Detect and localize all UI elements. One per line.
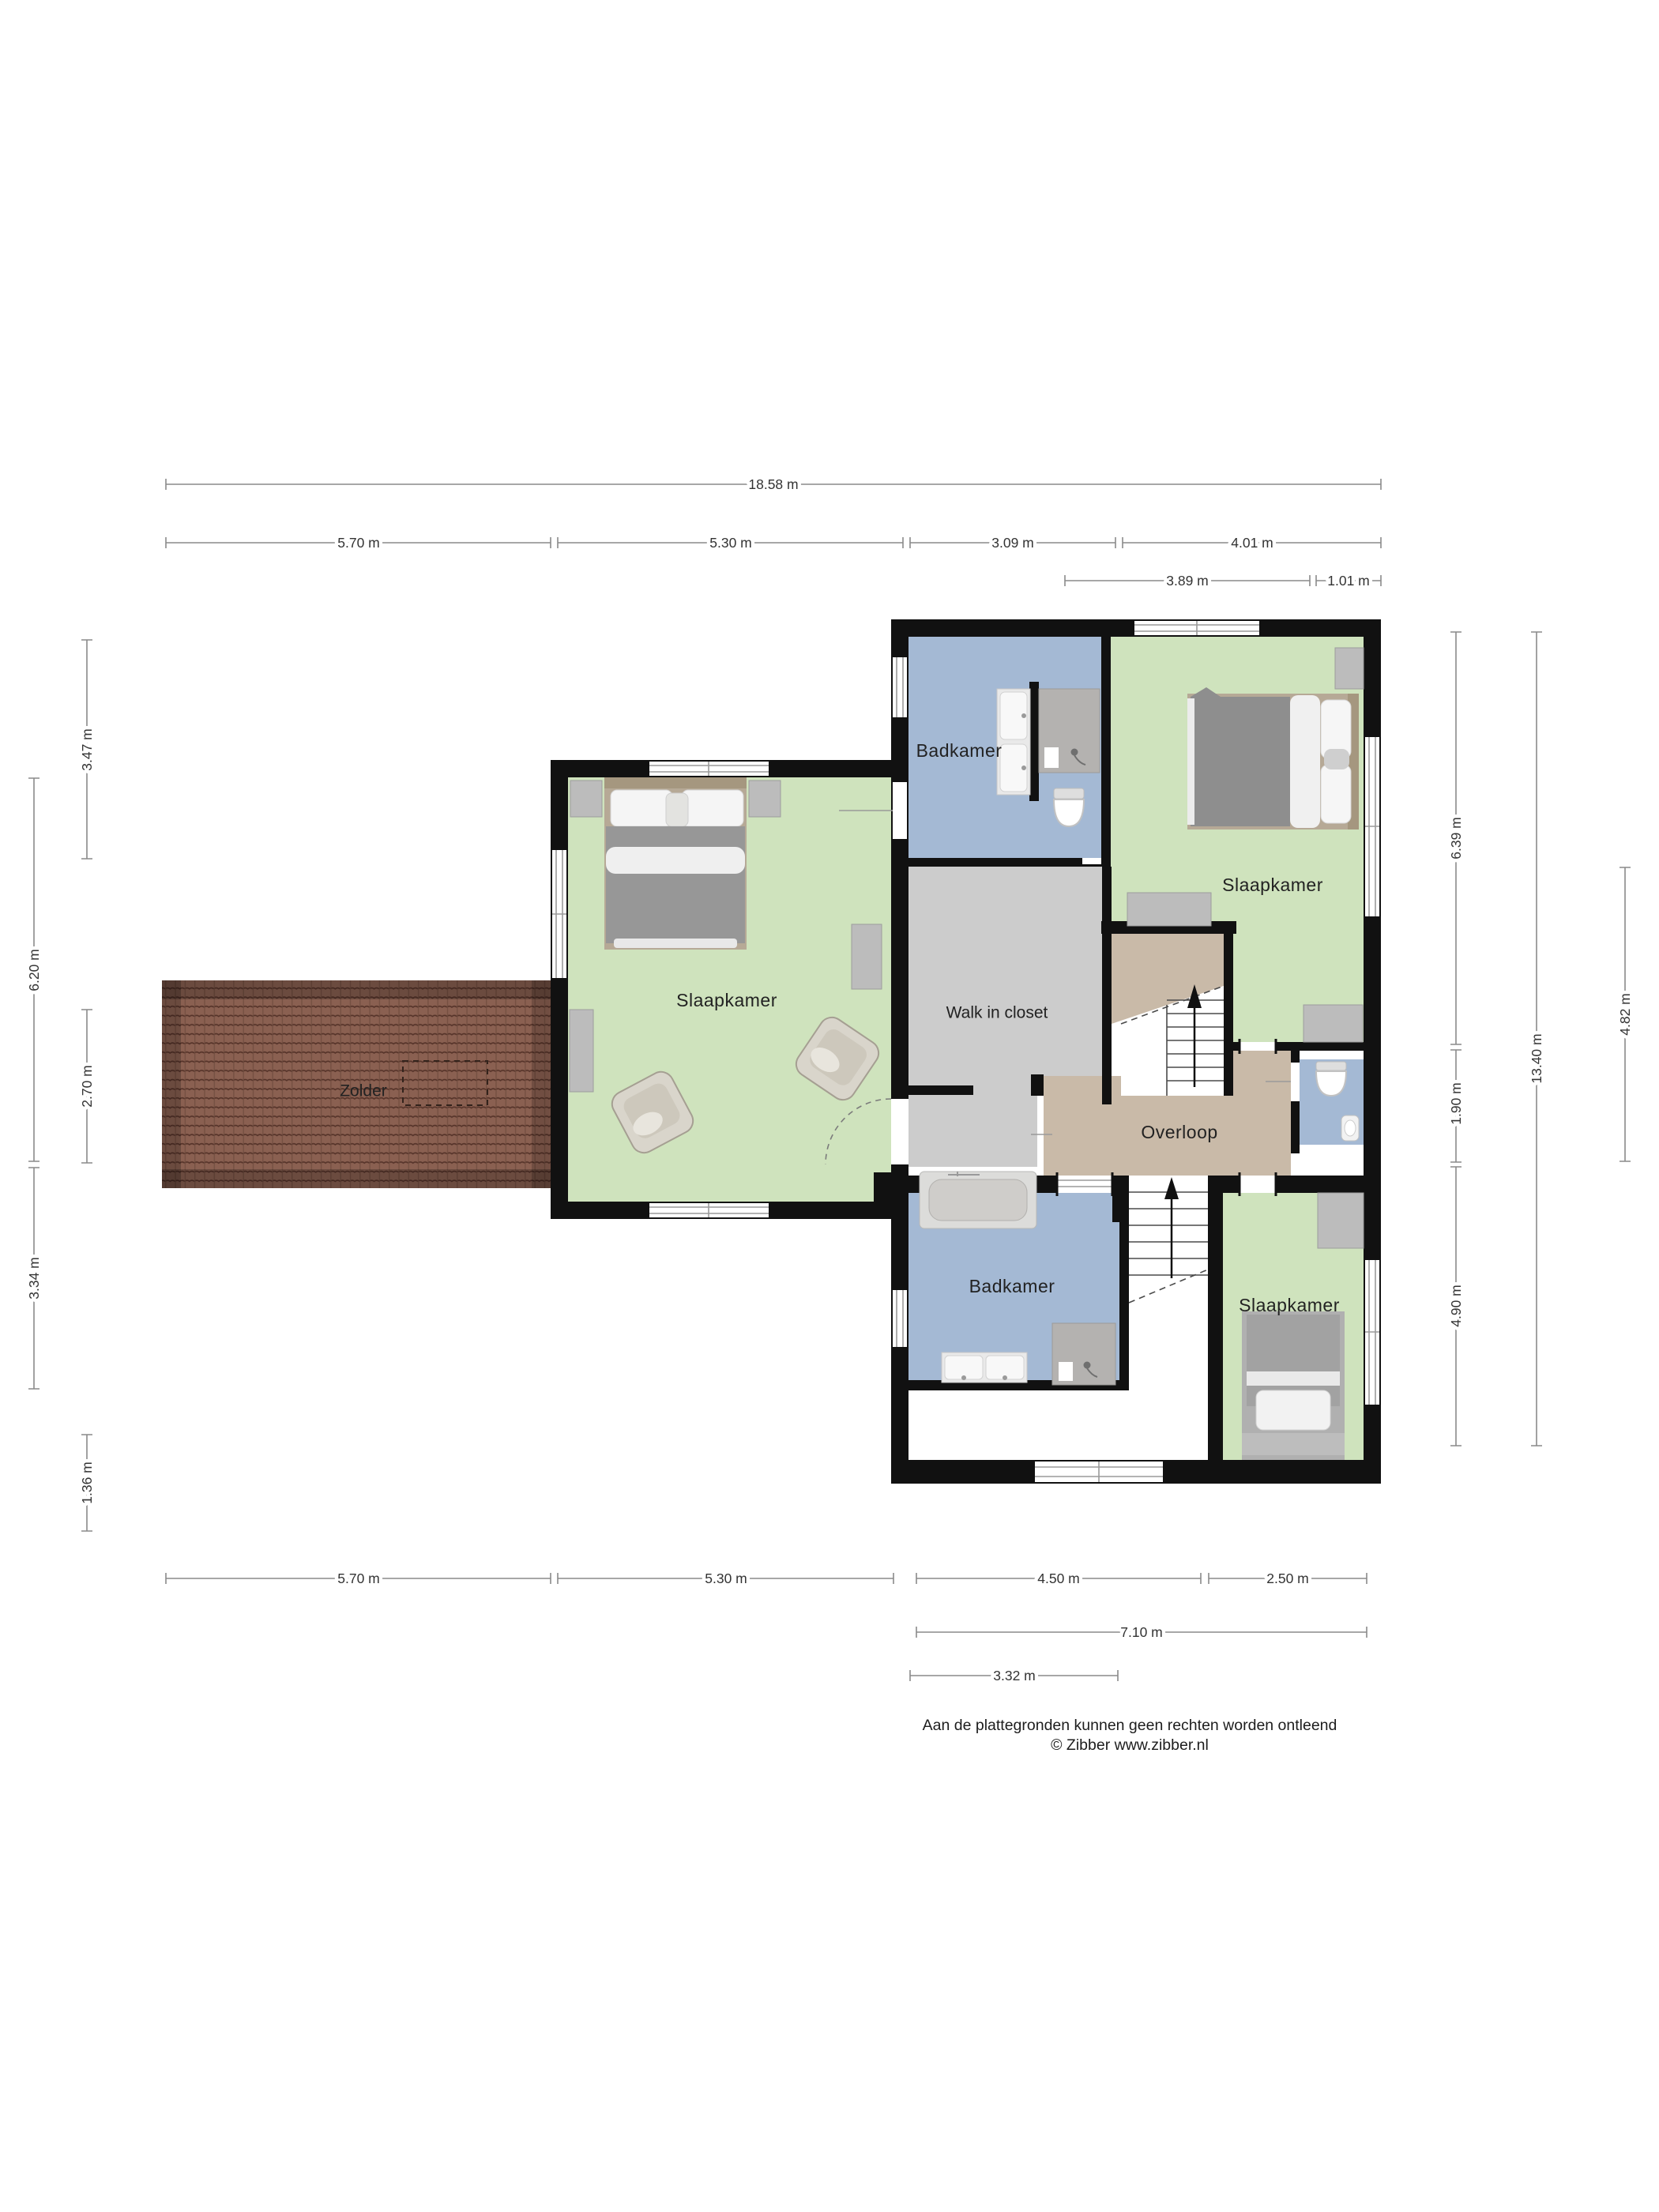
double-bed-top-right	[1187, 687, 1359, 829]
wall-stair-east-upper	[1224, 934, 1233, 1096]
toilet-top-bathroom	[1054, 788, 1084, 826]
shower-top-bathroom	[1039, 689, 1100, 773]
dim-left-1: 6.20 m	[26, 949, 42, 991]
wall-badkamer-bottom-east	[1119, 1193, 1129, 1390]
label-badkamer-bottom: Badkamer	[969, 1276, 1055, 1296]
dim-left-3: 3.34 m	[26, 1257, 42, 1300]
dimensions-left: 3.47 m 6.20 m 2.70 m 3.34 m 1.36 m	[26, 640, 95, 1531]
stairs-lower	[1129, 1176, 1208, 1460]
vanity-bottom-bathroom	[942, 1352, 1027, 1382]
dimensions-right: 6.39 m 1.90 m 4.90 m 13.40 m 4.82 m	[1448, 632, 1633, 1446]
dim-right-2: 4.90 m	[1448, 1285, 1464, 1327]
door-overloop-bedroom-bottom	[1240, 1172, 1276, 1196]
shower-bottom-bathroom	[1052, 1323, 1115, 1385]
dim-right-3: 13.40 m	[1529, 1033, 1544, 1083]
window-north	[1134, 621, 1259, 635]
label-zolder: Zolder	[340, 1082, 387, 1100]
dim-top-total: 18.58 m	[748, 476, 798, 492]
dimensions-bottom: 5.70 m 5.30 m 4.50 m 2.50 m 7.10 m 3.32 …	[166, 1571, 1367, 1683]
wall-west-main	[891, 619, 908, 1484]
double-bed-left	[604, 777, 747, 950]
wall-wing-west	[551, 760, 568, 1219]
dim-bottom-5: 3.32 m	[993, 1668, 1036, 1683]
washbasin-wc	[1341, 1115, 1359, 1141]
door-badkamer-top	[1082, 858, 1101, 864]
bathtub	[920, 1172, 1036, 1228]
window-wing-south	[649, 1203, 769, 1217]
window-wing-west	[552, 850, 566, 978]
footer-disclaimer: Aan de plattegronden kunnen geen rechten…	[923, 1717, 1337, 1734]
window-slaapkamer-top-east	[1365, 737, 1379, 916]
window-south	[1035, 1461, 1163, 1482]
window-wing-north	[649, 762, 769, 776]
cabinet-top-bedroom-south	[1127, 893, 1211, 926]
dim-top-3: 3.09 m	[991, 535, 1034, 551]
single-bed-bottom	[1242, 1311, 1345, 1460]
wall-overloop-south-c	[1276, 1176, 1381, 1193]
dim-top-4: 4.01 m	[1231, 535, 1273, 551]
wall-closet-stub	[907, 1085, 973, 1095]
window-slaapkamer-bottom-east	[1365, 1260, 1379, 1405]
dresser-overloop-arm	[1303, 1005, 1363, 1042]
dim-left-0: 3.47 m	[79, 728, 95, 771]
dim-bottom-1: 5.30 m	[705, 1571, 747, 1586]
label-badkamer-top: Badkamer	[916, 740, 1003, 761]
wall-wing-corner	[874, 1172, 907, 1219]
dim-top-6: 1.01 m	[1327, 573, 1370, 589]
nightstand-left	[570, 781, 602, 817]
door-overloop-badkamer-bottom	[1057, 1172, 1112, 1196]
cabinet-wing-west	[570, 1010, 593, 1092]
label-slaapkamer-top: Slaapkamer	[1222, 875, 1323, 895]
wall-closet-door-jamb	[1031, 1074, 1044, 1096]
wall-overloop-south-b	[1208, 1176, 1240, 1193]
wall-bedroom-bottom-west	[1208, 1193, 1223, 1460]
label-slaapkamer-left: Slaapkamer	[676, 990, 777, 1010]
footer-copyright: © Zibber www.zibber.nl	[1051, 1736, 1209, 1754]
wall-closet-east	[1102, 867, 1112, 1104]
dim-bottom-3: 2.50 m	[1266, 1571, 1309, 1586]
room-overloop-east-arm	[1233, 1051, 1291, 1176]
floorplan-svg: Badkamer Slaapkamer Slaapkamer Walk in c…	[0, 0, 1659, 2212]
cabinet-bottom-bedroom	[1318, 1193, 1364, 1248]
wall-badkamer-bedroom	[1101, 637, 1111, 867]
label-walk-in-closet: Walk in closet	[946, 1004, 1048, 1022]
dimensions-top: 18.58 m 5.70 m 5.30 m 3.09 m 4.01 m 3.89…	[166, 476, 1381, 589]
nightstand-right	[749, 781, 781, 817]
dim-right-4: 4.82 m	[1617, 993, 1633, 1036]
label-overloop: Overloop	[1141, 1122, 1217, 1142]
dim-left-4: 1.36 m	[79, 1461, 95, 1504]
dim-right-1: 1.90 m	[1448, 1082, 1464, 1125]
dim-bottom-0: 5.70 m	[337, 1571, 380, 1586]
toilet-wc	[1316, 1062, 1346, 1096]
floorplan-page: Badkamer Slaapkamer Slaapkamer Walk in c…	[0, 0, 1659, 2212]
wall-badkamer-top-south	[891, 858, 1111, 867]
footer: Aan de plattegronden kunnen geen rechten…	[923, 1717, 1337, 1754]
label-slaapkamer-bottom: Slaapkamer	[1239, 1295, 1340, 1315]
dim-bottom-4: 7.10 m	[1120, 1624, 1163, 1640]
window-badkamer-bottom-west	[893, 1290, 907, 1347]
dim-right-0: 6.39 m	[1448, 817, 1464, 860]
cabinet-wing-east	[852, 924, 882, 989]
dim-top-2: 5.30 m	[709, 535, 752, 551]
dim-bottom-2: 4.50 m	[1037, 1571, 1080, 1586]
cabinet-top-bedroom-ne	[1335, 648, 1364, 689]
dim-left-2: 2.70 m	[79, 1065, 95, 1108]
dim-top-5: 3.89 m	[1166, 573, 1209, 589]
wall-shower-divider	[1029, 682, 1039, 801]
window-badkamer-top-west	[893, 657, 907, 717]
dim-top-1: 5.70 m	[337, 535, 380, 551]
